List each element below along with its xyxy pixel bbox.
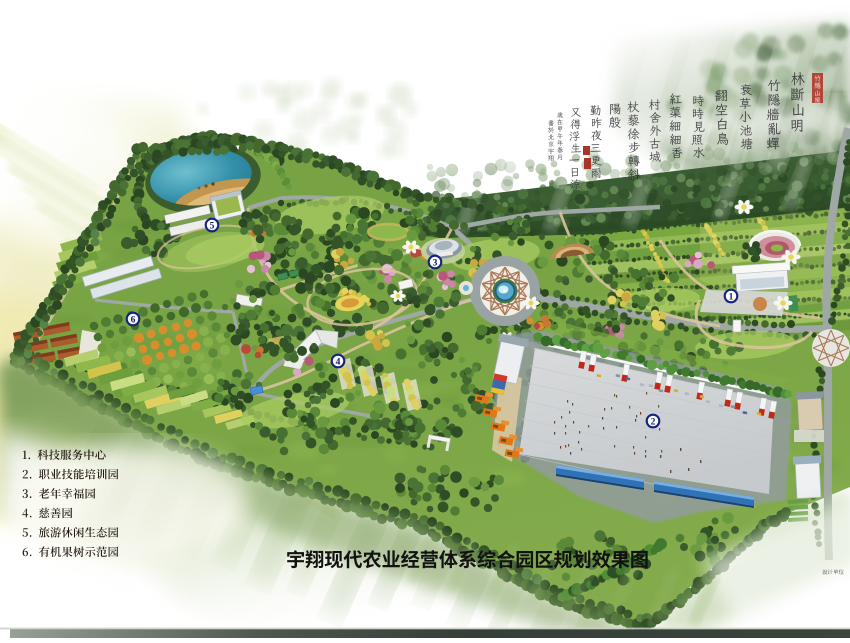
svg-text:4: 4	[336, 357, 341, 367]
svg-text:5: 5	[210, 221, 215, 231]
svg-text:3: 3	[433, 258, 438, 268]
svg-text:1: 1	[729, 292, 734, 302]
svg-text:2: 2	[651, 417, 656, 427]
svg-text:6: 6	[131, 315, 136, 325]
